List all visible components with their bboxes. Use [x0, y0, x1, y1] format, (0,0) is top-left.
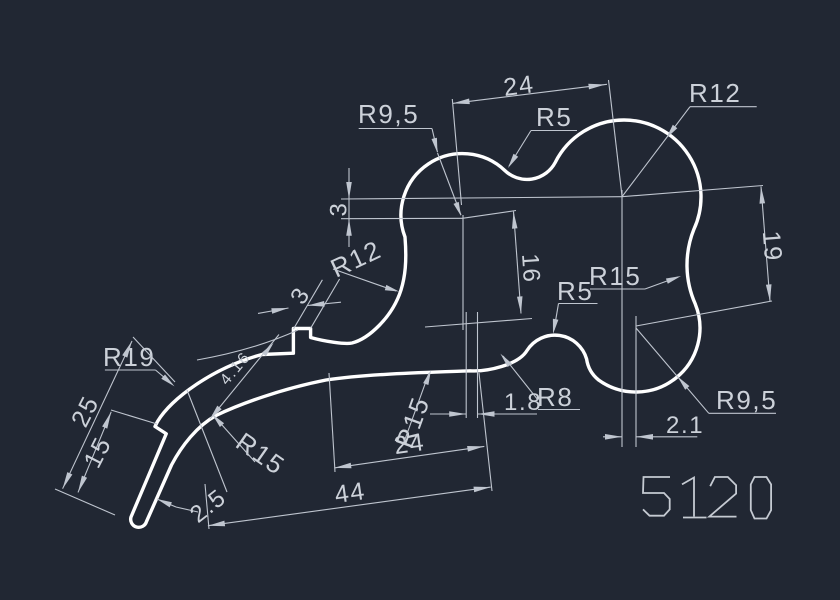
svg-text:44: 44 [333, 477, 368, 509]
svg-text:25: 25 [66, 391, 105, 431]
svg-text:R12: R12 [689, 78, 742, 108]
svg-text:16: 16 [516, 253, 545, 285]
svg-text:24: 24 [502, 70, 536, 102]
svg-text:R15: R15 [231, 426, 291, 481]
svg-text:R15: R15 [589, 261, 642, 291]
svg-text:3: 3 [326, 202, 353, 217]
svg-text:R5: R5 [557, 276, 593, 306]
svg-text:R9,5: R9,5 [716, 385, 777, 415]
svg-text:R15: R15 [389, 392, 435, 452]
svg-text:15: 15 [78, 432, 117, 472]
svg-text:2.5: 2.5 [185, 484, 232, 529]
svg-text:R9,5: R9,5 [358, 99, 419, 129]
svg-text:R5: R5 [536, 102, 572, 132]
svg-text:R8: R8 [537, 382, 573, 412]
svg-text:19: 19 [757, 230, 787, 263]
svg-text:R12: R12 [326, 234, 386, 283]
svg-text:2.1: 2.1 [666, 412, 704, 439]
